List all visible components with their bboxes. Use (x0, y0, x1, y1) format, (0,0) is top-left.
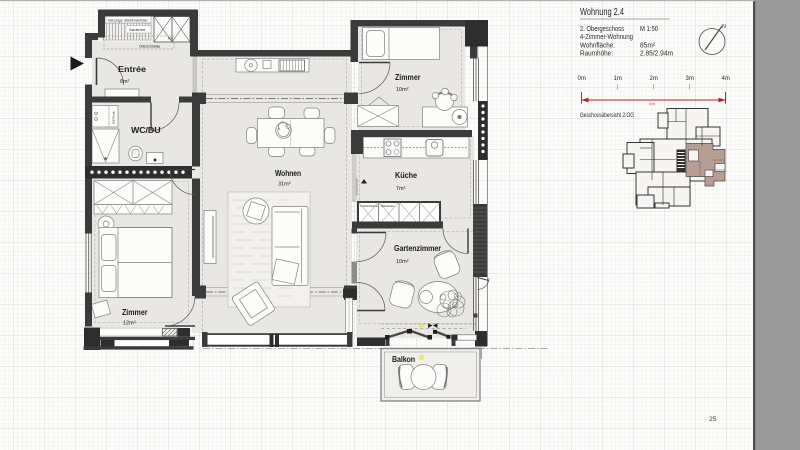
svg-text:Zimmer: Zimmer (122, 308, 148, 317)
svg-text:85m²: 85m² (640, 43, 656, 50)
svg-text:4 m: 4 m (649, 102, 655, 106)
svg-text:25: 25 (709, 416, 717, 423)
svg-text:Gartenzimmer: Gartenzimmer (394, 244, 441, 253)
svg-text:Kühlschrank: Kühlschrank (361, 204, 378, 208)
svg-text:Wohnfläche:: Wohnfläche: (580, 43, 615, 50)
svg-text:2m: 2m (650, 76, 658, 82)
svg-text:Heizungs- /Elektroverteiler: Heizungs- /Elektroverteiler (108, 19, 149, 23)
svg-text:Wohnung 2.4: Wohnung 2.4 (580, 6, 624, 18)
svg-text:31m²: 31m² (278, 182, 291, 188)
svg-text:F.lü: F.lü (168, 37, 173, 41)
svg-text:6m²: 6m² (120, 79, 130, 85)
svg-text:Küche: Küche (395, 171, 418, 180)
svg-text:Zimmer: Zimmer (395, 73, 421, 82)
svg-text:7m²: 7m² (396, 186, 406, 192)
svg-text:2. Obergeschoss: 2. Obergeschoss (580, 26, 624, 33)
svg-text:10m²: 10m² (396, 87, 409, 93)
svg-text:Garderobe: Garderobe (129, 28, 145, 32)
svg-text:10m²: 10m² (396, 259, 409, 265)
svg-text:1m: 1m (614, 76, 622, 82)
svg-text:Geschossübersicht 2.OG: Geschossübersicht 2.OG (580, 112, 634, 119)
svg-text:Raumhöhe:: Raumhöhe: (580, 51, 613, 58)
svg-text:12m²: 12m² (123, 321, 136, 327)
svg-text:4m: 4m (722, 76, 730, 82)
svg-text:0m: 0m (578, 76, 586, 82)
svg-text:Wohnen: Wohnen (275, 169, 301, 178)
svg-text:WV./Tumb.: WV./Tumb. (112, 110, 116, 124)
svg-text:3m: 3m (686, 76, 694, 82)
svg-text:Balkon: Balkon (392, 355, 415, 364)
svg-text:Entrée: Entrée (118, 65, 147, 74)
svg-text:N: N (722, 24, 726, 30)
svg-text:WC/DU: WC/DU (131, 126, 161, 135)
svg-text:Oberschränke: Oberschränke (139, 45, 160, 49)
svg-text:2.85/2.94m: 2.85/2.94m (640, 51, 673, 58)
svg-text:Backofen: Backofen (382, 204, 395, 208)
svg-text:4-Zimmer-Wohnung: 4-Zimmer-Wohnung (580, 34, 633, 41)
svg-text:M 1:50: M 1:50 (640, 26, 658, 33)
